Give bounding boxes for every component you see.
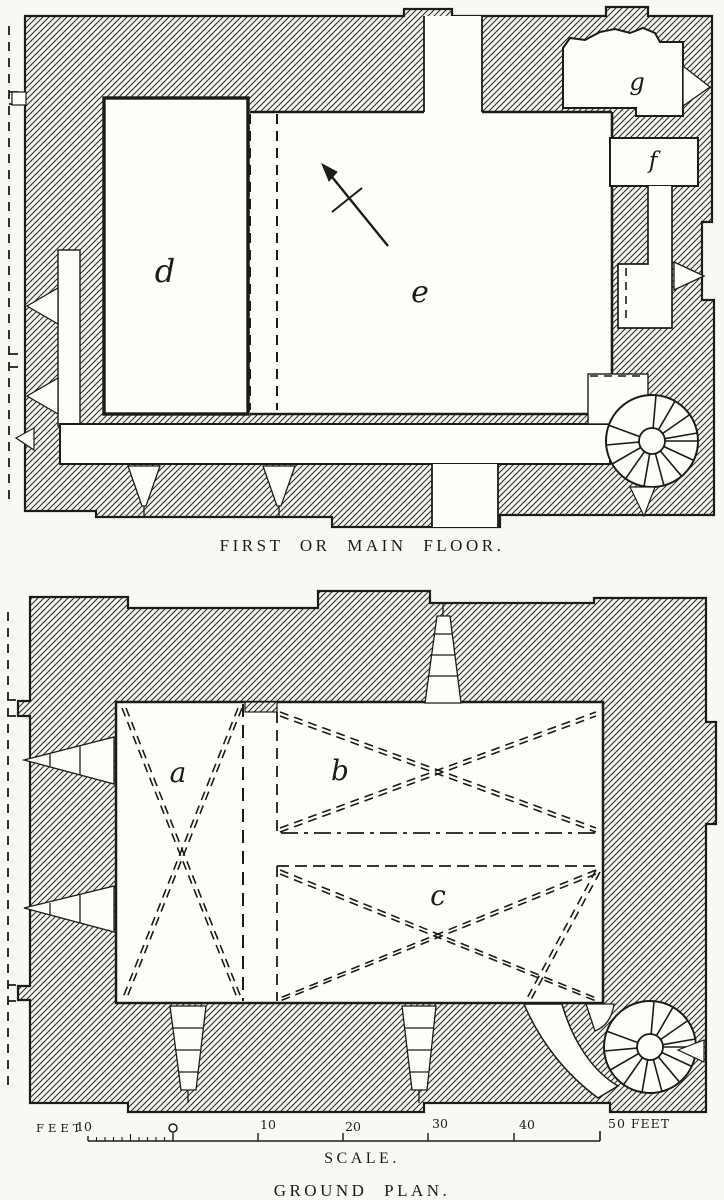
engraving-page: d e f g FIRST OR MAIN FLOOR.	[0, 0, 724, 1200]
entrance-passage	[424, 16, 482, 114]
scale-tick-30: 30	[432, 1116, 448, 1131]
room-e-area	[250, 112, 612, 414]
left-passage	[58, 250, 80, 426]
scale-end-label: 50 FEET	[608, 1116, 670, 1131]
room-label-e: e	[411, 275, 429, 310]
wall-stub	[245, 702, 277, 712]
room-label-c: c	[430, 879, 446, 912]
first-floor-caption: FIRST OR MAIN FLOOR.	[220, 536, 505, 555]
room-label-b: b	[331, 754, 349, 787]
gallery	[60, 424, 610, 464]
floor-plans-drawing: d e f g FIRST OR MAIN FLOOR.	[0, 0, 724, 1200]
scale-left-tick: 10	[76, 1119, 92, 1134]
room-label-d: d	[155, 252, 175, 290]
scale-bar: FEET 10 10 20 30 40 50 FEET SCALE.	[36, 1116, 670, 1167]
ground-plan-caption: GROUND PLAN.	[274, 1181, 451, 1200]
dashed-outline-left-ground	[8, 612, 16, 1092]
ground-plan: a b c	[8, 591, 716, 1112]
room-d-area	[104, 98, 248, 414]
scale-tick-40: 40	[519, 1117, 535, 1132]
room-label-a: a	[170, 756, 187, 789]
wall-notch	[12, 92, 26, 105]
scale-minor-ticks	[97, 1134, 165, 1141]
first-floor-plan: d e f g FIRST OR MAIN FLOOR.	[9, 7, 714, 555]
scale-caption: SCALE.	[324, 1150, 400, 1167]
scale-major-ticks	[88, 1133, 514, 1141]
zero-knob	[169, 1124, 177, 1132]
room-label-g: g	[629, 68, 644, 96]
ground-interior	[116, 702, 603, 1003]
scale-tick-10: 10	[260, 1117, 276, 1132]
scale-tick-20: 20	[345, 1119, 361, 1134]
bottom-passage	[432, 464, 498, 527]
